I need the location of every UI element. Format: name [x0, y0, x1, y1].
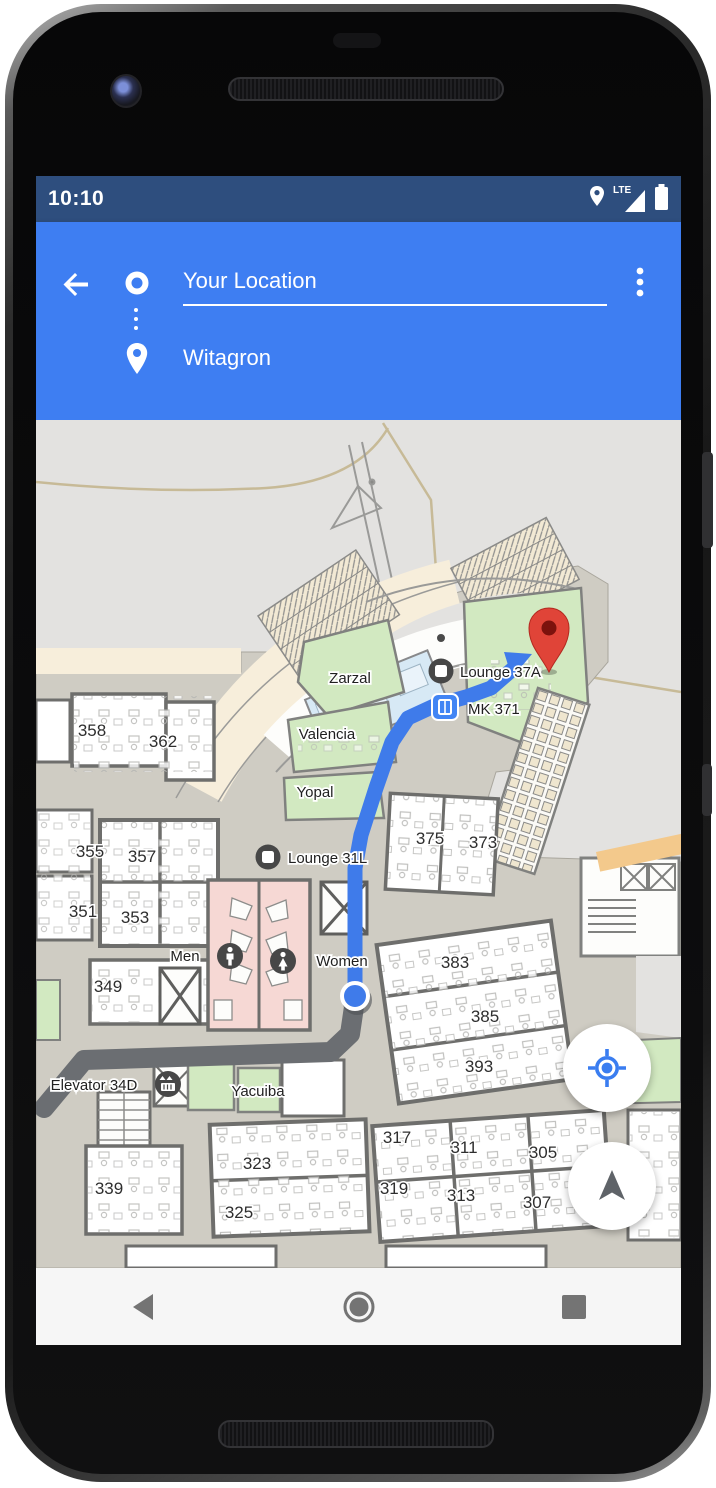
map-label: 373	[469, 833, 497, 852]
status-bar: 10:10 LTE	[36, 176, 681, 222]
recents-square-icon	[560, 1293, 588, 1321]
right-stairwell	[581, 858, 679, 956]
origin-field[interactable]: Your Location	[183, 268, 607, 306]
overflow-menu-icon[interactable]	[626, 265, 654, 299]
map-label: 385	[471, 1007, 499, 1026]
map-label: 375	[416, 829, 444, 848]
map-label: Yacuiba	[231, 1083, 285, 1100]
women-restroom-icon	[270, 948, 296, 974]
power-button[interactable]	[702, 452, 713, 548]
signal-lte-icon: LTE	[613, 186, 647, 212]
elevator-mk371-icon[interactable]	[432, 694, 458, 720]
top-sensor	[333, 33, 381, 48]
map-label: 355	[76, 842, 104, 861]
nav-home-button[interactable]	[314, 1277, 404, 1337]
indoor-map[interactable]: 3583623553573513533493393233253753733833…	[36, 420, 681, 1268]
map-label: Lounge 31L	[288, 850, 367, 867]
terrace-strip	[36, 648, 241, 674]
map-label: Elevator 34D	[51, 1077, 138, 1094]
map-label: 305	[529, 1143, 557, 1162]
map-label: 362	[149, 732, 177, 751]
earpiece-speaker	[228, 77, 504, 101]
nav-recents-button[interactable]	[529, 1277, 619, 1337]
map-label: 393	[465, 1057, 493, 1076]
volume-button[interactable]	[702, 764, 712, 816]
map-label: 358	[78, 721, 106, 740]
elevator-34d-icon[interactable]	[155, 1071, 181, 1097]
map-label: 339	[95, 1179, 123, 1198]
map-label: 349	[94, 977, 122, 996]
directions-header: Your Location Witagron	[36, 222, 681, 420]
navigation-arrow-icon	[592, 1166, 632, 1206]
lounge-icon	[429, 659, 454, 684]
system-nav-bar	[36, 1268, 681, 1345]
crosshair-target-icon	[586, 1047, 628, 1089]
battery-icon	[654, 184, 669, 215]
back-arrow-icon[interactable]	[60, 268, 92, 300]
map-label: 383	[441, 953, 469, 972]
map-label: Men	[170, 948, 199, 965]
map-label: 313	[447, 1186, 475, 1205]
map-label: 323	[243, 1154, 271, 1173]
nav-back-button[interactable]	[99, 1277, 189, 1337]
back-triangle-icon	[129, 1292, 159, 1322]
compass-button[interactable]	[568, 1142, 656, 1230]
column-dot	[437, 634, 445, 642]
map-label: Women	[316, 953, 367, 970]
bottom-speaker	[218, 1420, 494, 1448]
map-label: MK 371	[468, 701, 520, 718]
map-label: 353	[121, 908, 149, 927]
map-label: 357	[128, 847, 156, 866]
blue-location-dot	[342, 983, 372, 1015]
map-label: Zarzal	[329, 670, 371, 687]
lounge-31l-icon	[256, 845, 281, 870]
map-label: Valencia	[299, 726, 356, 743]
origin-circle-icon	[124, 270, 150, 296]
floor-plan-svg[interactable]: 3583623553573513533493393233253753733833…	[36, 420, 681, 1268]
map-label: Yopal	[297, 784, 334, 801]
clock: 10:10	[48, 187, 104, 211]
map-label: 351	[69, 902, 97, 921]
location-pin-icon	[588, 185, 606, 214]
home-circle-icon	[342, 1290, 376, 1324]
my-location-button[interactable]	[563, 1024, 651, 1112]
office-block-355	[100, 820, 218, 946]
map-label: 307	[523, 1193, 551, 1212]
destination-field[interactable]: Witagron	[183, 345, 271, 371]
screenshot-root: { "status_bar": { "time": "10:10", "netw…	[0, 0, 716, 1488]
map-label: 317	[383, 1128, 411, 1147]
map-label: 319	[380, 1179, 408, 1198]
front-camera	[110, 74, 142, 108]
destination-pin-icon	[122, 342, 152, 376]
route-dots-connector	[134, 308, 138, 330]
map-label: 311	[450, 1138, 477, 1157]
status-icons: LTE	[588, 176, 669, 222]
map-label: 325	[225, 1203, 253, 1222]
men-restroom-icon	[217, 943, 243, 969]
courtyard	[636, 956, 681, 1038]
map-label: Lounge 37A	[460, 664, 541, 681]
android-screen: 10:10 LTE Your Locati	[36, 176, 681, 1345]
